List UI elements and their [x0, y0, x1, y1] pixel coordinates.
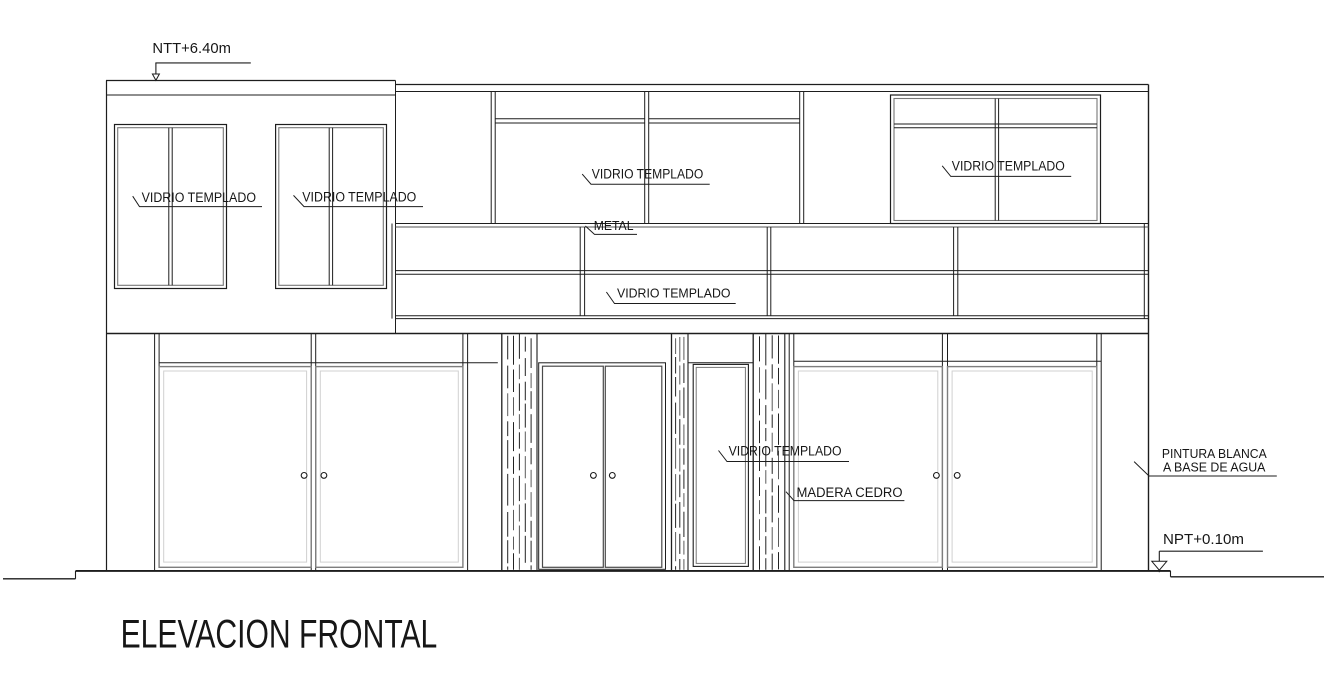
- svg-text:ELEVACION FRONTAL: ELEVACION FRONTAL: [121, 612, 438, 656]
- svg-text:MADERA CEDRO: MADERA CEDRO: [797, 485, 903, 500]
- svg-text:METAL: METAL: [594, 219, 634, 233]
- svg-text:VIDRIO TEMPLADO: VIDRIO TEMPLADO: [952, 159, 1065, 174]
- svg-text:VIDRIO TEMPLADO: VIDRIO TEMPLADO: [302, 189, 416, 204]
- svg-text:PINTURA BLANCA: PINTURA BLANCA: [1162, 446, 1267, 461]
- svg-text:VIDRIO TEMPLADO: VIDRIO TEMPLADO: [729, 444, 842, 459]
- svg-text:VIDRIO TEMPLADO: VIDRIO TEMPLADO: [617, 286, 731, 301]
- svg-text:VIDRIO TEMPLADO: VIDRIO TEMPLADO: [142, 190, 256, 205]
- svg-text:A BASE DE AGUA: A BASE DE AGUA: [1163, 460, 1266, 475]
- svg-text:NPT+0.10m: NPT+0.10m: [1163, 531, 1244, 548]
- svg-text:NTT+6.40m: NTT+6.40m: [152, 40, 231, 57]
- svg-text:VIDRIO TEMPLADO: VIDRIO TEMPLADO: [592, 166, 704, 181]
